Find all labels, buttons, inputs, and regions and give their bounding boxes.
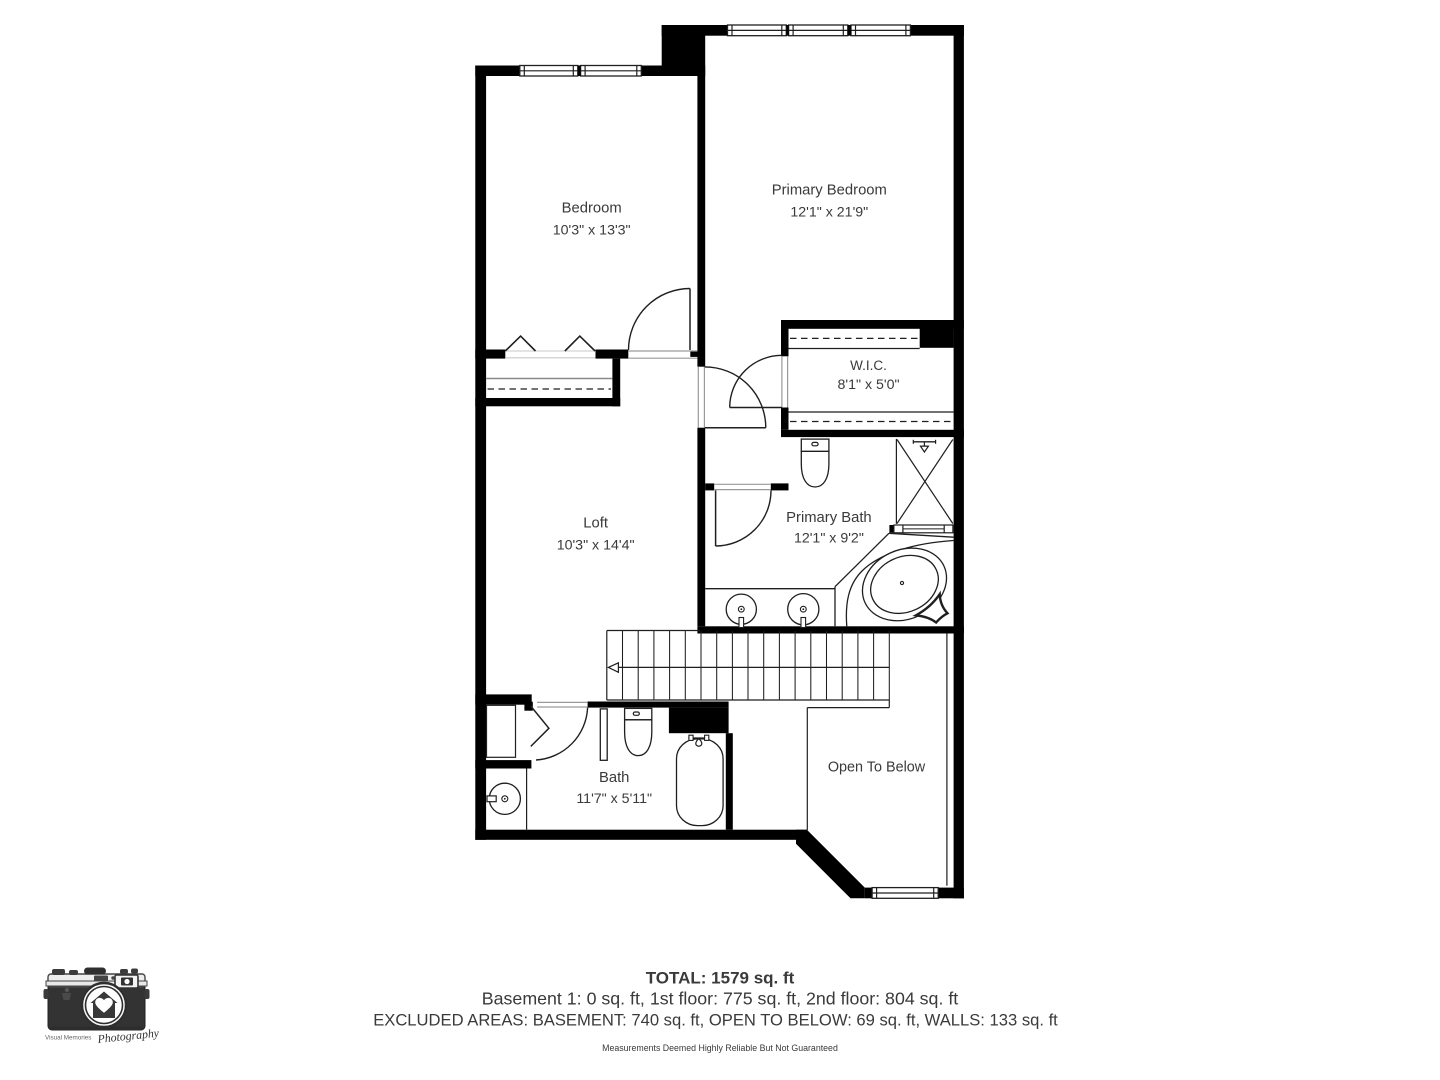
svg-text:Measurements Deemed Highly Rel: Measurements Deemed Highly Reliable But …: [602, 1043, 838, 1053]
svg-text:11'7" x 5'11": 11'7" x 5'11": [576, 791, 652, 807]
svg-text:Bath: Bath: [599, 770, 629, 786]
svg-text:10'3" x 14'4": 10'3" x 14'4": [557, 538, 635, 554]
svg-text:Basement 1: 0 sq. ft, 1st floo: Basement 1: 0 sq. ft, 1st floor: 775 sq.…: [482, 989, 958, 1009]
svg-text:TOTAL: 1579 sq. ft: TOTAL: 1579 sq. ft: [646, 969, 795, 988]
svg-text:Primary Bedroom: Primary Bedroom: [772, 182, 887, 198]
svg-text:Open To Below: Open To Below: [828, 759, 926, 775]
svg-text:Primary Bath: Primary Bath: [786, 510, 872, 526]
svg-text:EXCLUDED AREAS: BASEMENT: 740: EXCLUDED AREAS: BASEMENT: 740 sq. ft, OP…: [373, 1011, 1058, 1030]
svg-text:12'1" x 21'9": 12'1" x 21'9": [790, 205, 868, 221]
svg-text:Loft: Loft: [583, 515, 608, 531]
svg-text:10'3" x 13'3": 10'3" x 13'3": [553, 222, 631, 238]
svg-text:W.I.C.: W.I.C.: [850, 358, 887, 373]
svg-text:12'1" x 9'2": 12'1" x 9'2": [794, 531, 864, 547]
svg-text:Bedroom: Bedroom: [562, 200, 622, 216]
svg-text:8'1" x 5'0": 8'1" x 5'0": [837, 377, 899, 393]
svg-text:Visual Memories: Visual Memories: [45, 1035, 91, 1042]
